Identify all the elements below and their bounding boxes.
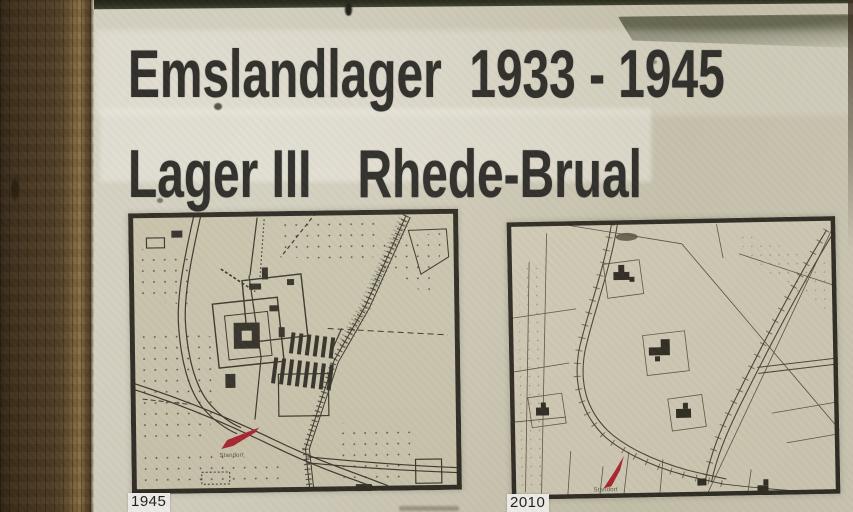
wood-knot: [10, 176, 20, 202]
dirt-speck: [652, 60, 657, 64]
map-credit-smudge: [399, 506, 459, 511]
sign-title: Emslandlager 1933 - 1945 Lager III Rhede…: [128, 36, 777, 196]
title-rhede-brual: Rhede-Brual: [357, 136, 641, 214]
map-1945-standort-label: Standort: [219, 453, 243, 459]
year-label-2010: 2010: [507, 494, 549, 512]
year-label-1945: 1945: [128, 493, 170, 512]
map-2010-standort-label: Standort: [593, 487, 618, 493]
map-2010: Standort: [506, 216, 840, 500]
dirt-speck: [157, 198, 163, 203]
screw-icon: [344, 1, 353, 16]
board-right-edge-shadow: [848, 0, 853, 250]
wooden-post: [0, 0, 94, 512]
dirt-speck: [214, 103, 222, 110]
title-word-emslandlager: Emslandlager: [128, 36, 442, 114]
title-years: 1933 - 1945: [469, 36, 724, 114]
title-line-2: Lager III Rhede-Brual: [128, 136, 725, 214]
board-top-edge: [0, 0, 853, 10]
photo-of-memorial-sign: Emslandlager 1933 - 1945 Lager III Rhede…: [0, 0, 853, 512]
title-lager-iii: Lager III: [128, 136, 311, 214]
map-1945: Standort: [128, 209, 462, 495]
